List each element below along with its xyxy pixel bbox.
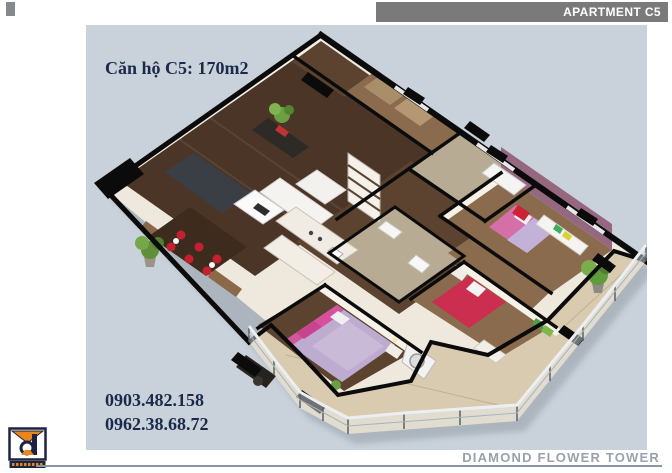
floor-plan-render <box>86 25 647 450</box>
phone-number-1: 0903.482.158 <box>105 388 209 412</box>
corner-mark <box>6 2 15 16</box>
plan-title: Căn hộ C5: 170m2 <box>105 58 249 79</box>
floorplan-panel: Căn hộ C5: 170m2 0903.482.158 0962.38.68… <box>86 25 647 450</box>
footer-divider <box>36 465 662 467</box>
page: APARTMENT C5 <box>0 0 672 473</box>
header-bar: APARTMENT C5 <box>376 2 668 22</box>
company-logo-icon <box>8 427 48 469</box>
building-name: DIAMOND FLOWER TOWER <box>462 450 660 465</box>
plant-left-icon <box>135 236 164 267</box>
apartment-tag-label: APARTMENT C5 <box>563 5 668 19</box>
contact-phones: 0903.482.158 0962.38.68.72 <box>105 388 209 436</box>
phone-number-2: 0962.38.68.72 <box>105 412 209 436</box>
